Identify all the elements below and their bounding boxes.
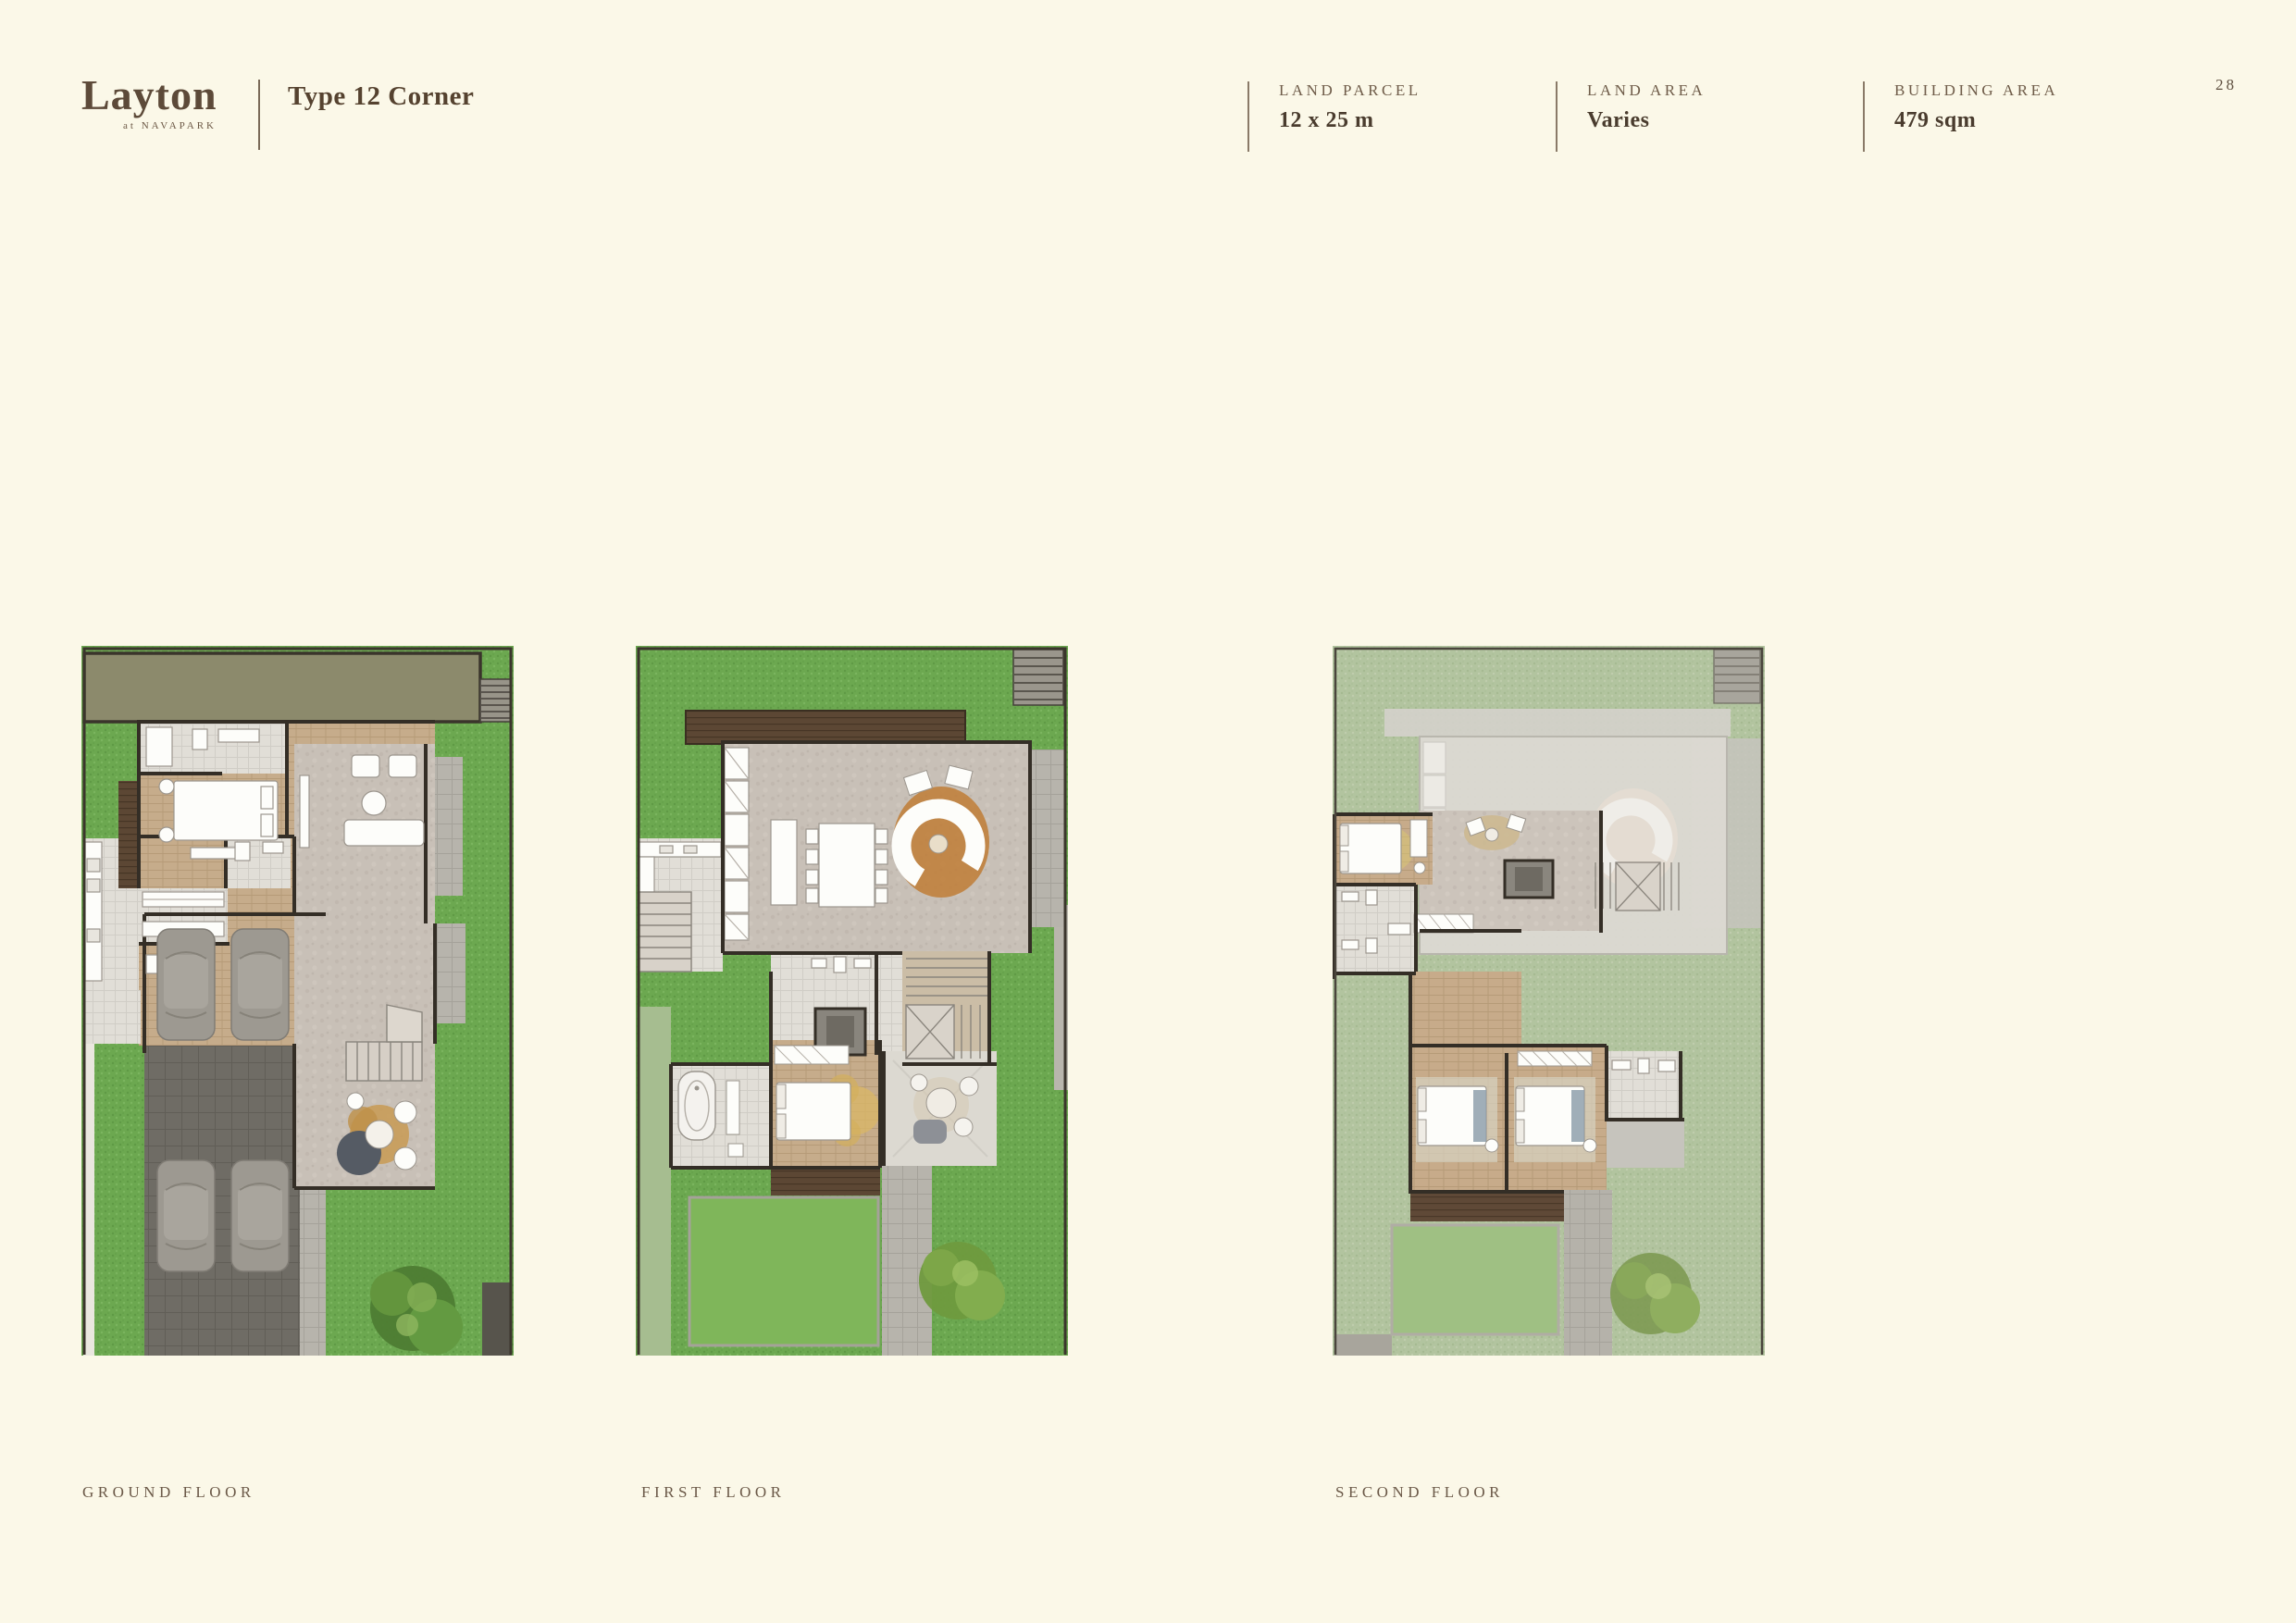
page-number: 28 <box>2215 76 2237 94</box>
spec-land-area: LAND AREA Varies <box>1556 81 1706 152</box>
second-floor-caption: SECOND FLOOR <box>1335 1483 1504 1502</box>
spec-land-parcel-value: 12 x 25 m <box>1279 108 1421 133</box>
patio-seating <box>337 1093 416 1175</box>
bedroom-two <box>1416 1077 1498 1162</box>
second-floor-plan <box>1333 646 1765 1356</box>
header-divider <box>258 80 260 150</box>
first-floor-caption: FIRST FLOOR <box>641 1483 785 1502</box>
brand-logo-name: Layton <box>81 74 220 117</box>
master-bedroom <box>1340 820 1427 874</box>
first-floor-plan-figure <box>636 646 1068 1356</box>
ground-floor-caption: GROUND FLOOR <box>82 1483 255 1502</box>
spec-building-area-value: 479 sqm <box>1894 108 2058 133</box>
brand-logo: Layton at NAVAPARK <box>81 74 220 131</box>
ground-floor-plan <box>81 646 514 1356</box>
brand-logo-subtitle: at NAVAPARK <box>81 120 217 131</box>
dining-set <box>771 820 887 907</box>
spec-building-area: BUILDING AREA 479 sqm <box>1863 81 2058 152</box>
spec-land-parcel-label: LAND PARCEL <box>1279 81 1421 100</box>
patio-set <box>911 1074 978 1144</box>
spec-land-parcel: LAND PARCEL 12 x 25 m <box>1247 81 1421 152</box>
spec-land-area-label: LAND AREA <box>1587 81 1706 100</box>
spec-land-area-value: Varies <box>1587 108 1706 133</box>
stairs-lower <box>639 892 691 972</box>
lift <box>1505 861 1553 898</box>
page-title: Type 12 Corner <box>288 81 474 112</box>
first-floor-plan <box>636 646 1068 1356</box>
ground-floor-plan-figure <box>81 646 514 1356</box>
spec-building-area-label: BUILDING AREA <box>1894 81 2058 100</box>
wood-deck <box>686 711 965 744</box>
ground-floor-roof-band <box>84 653 511 722</box>
brochure-page: { "page": { "number": "28", "background"… <box>0 0 2296 1623</box>
second-floor-plan-figure <box>1333 646 1765 1356</box>
